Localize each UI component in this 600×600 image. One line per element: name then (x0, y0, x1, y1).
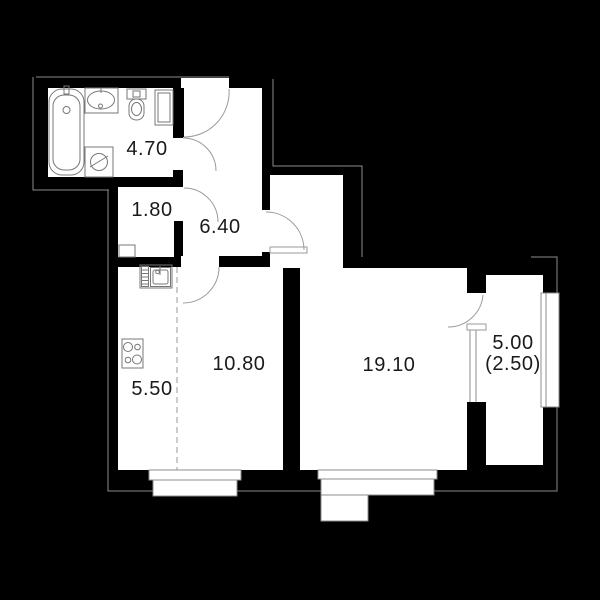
entrance-opening (181, 78, 229, 88)
room-bedroom-notch (270, 175, 343, 268)
room-label-hallway: 6.40 (199, 217, 240, 237)
bedroom-bay-window-outer (318, 470, 437, 479)
balcony-door-leaf (467, 324, 486, 330)
bedroom-bay-window-sill (321, 479, 434, 495)
room-label-bathroom: 4.70 (126, 139, 167, 159)
living-room-door-opening (181, 256, 219, 267)
room-label-balcony-secondary: (2.50) (485, 354, 541, 374)
room-bathroom (48, 88, 173, 177)
balcony-door-opening (467, 293, 486, 327)
room-label-wardrobe: 1.80 (131, 200, 172, 220)
bedroom-door-opening (262, 210, 270, 252)
floor-plan-drawing (0, 0, 600, 600)
room-wardrobe (118, 187, 174, 257)
room-label-living: 10.80 (212, 354, 265, 374)
room-label-balcony: 5.00 (492, 333, 533, 353)
bedroom-bay-window-step (321, 495, 368, 521)
entrance-door-leaf (175, 88, 184, 137)
balcony-glazing (541, 293, 559, 407)
floor-plan: 4.70 1.80 6.40 5.50 10.80 19.10 5.00 (2.… (0, 0, 600, 600)
kitchen-bay-window-sill (153, 480, 237, 496)
room-label-kitchen: 5.50 (131, 379, 172, 399)
wardrobe-door-opening (174, 187, 184, 221)
kitchen-bay-window-outer (149, 470, 241, 480)
bathroom-door-opening (173, 138, 183, 170)
bedroom-door-leaf (270, 247, 307, 253)
room-label-bedroom: 19.10 (362, 355, 415, 375)
